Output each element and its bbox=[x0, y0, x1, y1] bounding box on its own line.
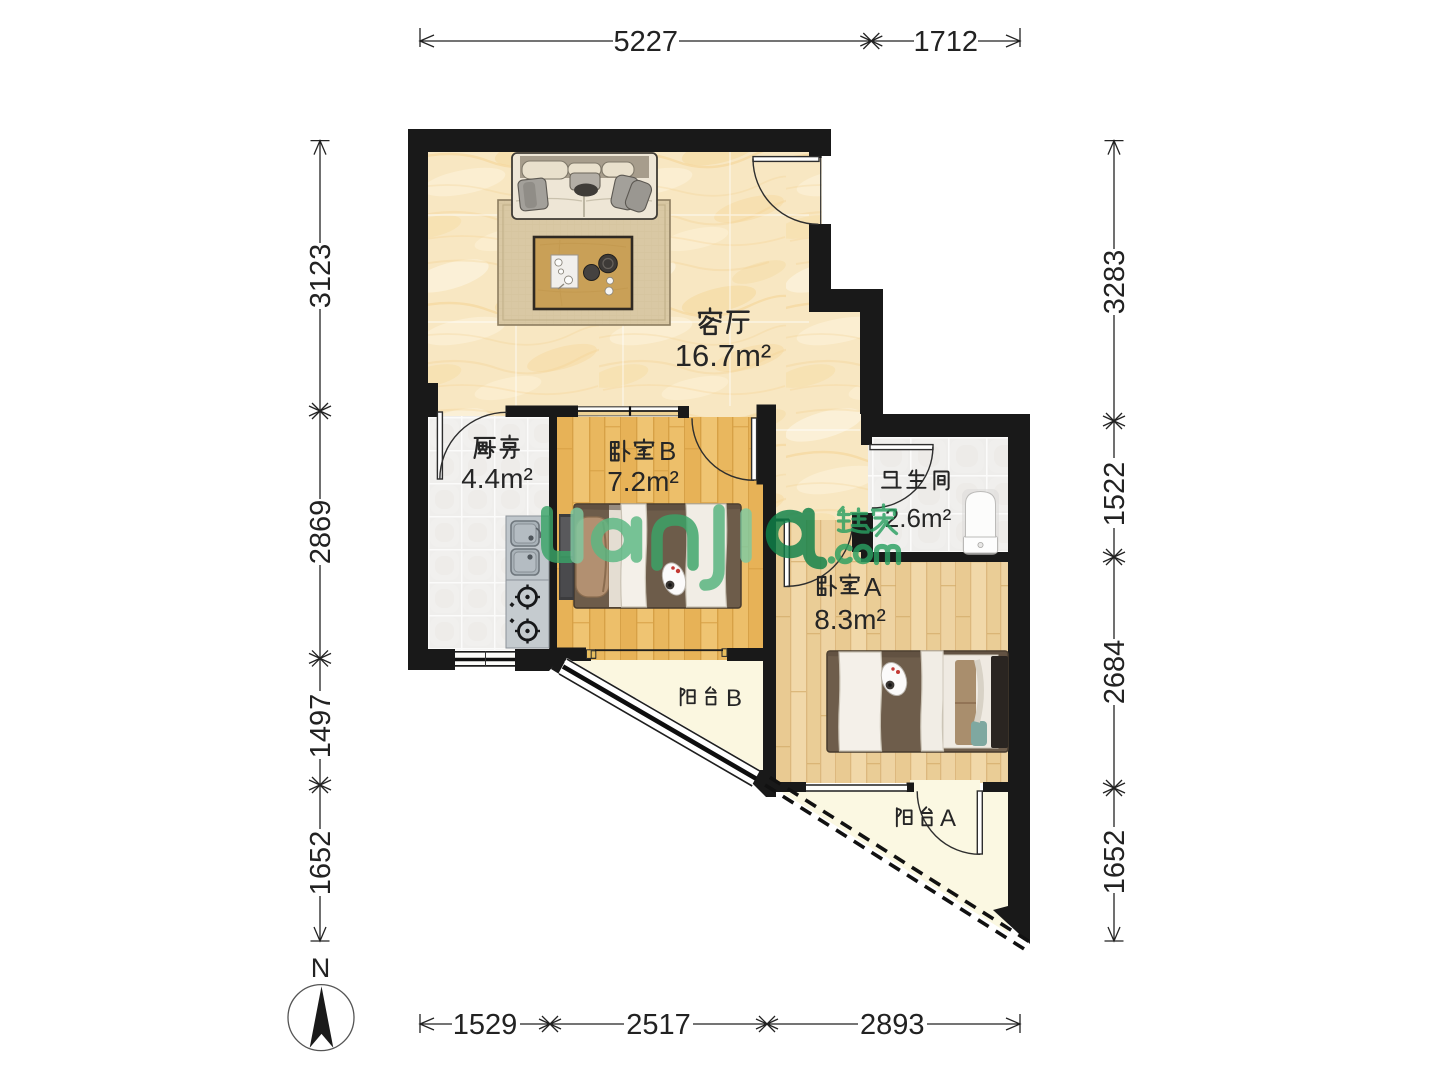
svg-text:1652: 1652 bbox=[1099, 830, 1131, 895]
svg-text:5227: 5227 bbox=[613, 26, 678, 58]
svg-text:B: B bbox=[659, 436, 676, 466]
svg-text:8.3m²: 8.3m² bbox=[814, 604, 886, 635]
svg-text:3283: 3283 bbox=[1099, 250, 1131, 315]
svg-text:7.2m²: 7.2m² bbox=[607, 466, 679, 497]
svg-text:2684: 2684 bbox=[1099, 640, 1131, 705]
svg-text:1652: 1652 bbox=[305, 831, 337, 896]
svg-text:3123: 3123 bbox=[305, 244, 337, 309]
svg-text:N: N bbox=[311, 953, 331, 983]
svg-text:4.4m²: 4.4m² bbox=[461, 463, 533, 494]
svg-text:2869: 2869 bbox=[305, 500, 337, 565]
svg-text:A: A bbox=[940, 805, 956, 832]
svg-text:2893: 2893 bbox=[860, 1009, 925, 1041]
svg-text:B: B bbox=[726, 685, 742, 712]
svg-text:2.6m²: 2.6m² bbox=[885, 503, 952, 533]
svg-text:1712: 1712 bbox=[913, 26, 978, 58]
svg-text:1529: 1529 bbox=[453, 1009, 518, 1041]
svg-text:2517: 2517 bbox=[626, 1009, 691, 1041]
svg-text:A: A bbox=[864, 572, 882, 602]
svg-text:1522: 1522 bbox=[1099, 462, 1131, 527]
svg-text:1497: 1497 bbox=[305, 694, 337, 759]
svg-text:16.7m²: 16.7m² bbox=[675, 338, 771, 373]
